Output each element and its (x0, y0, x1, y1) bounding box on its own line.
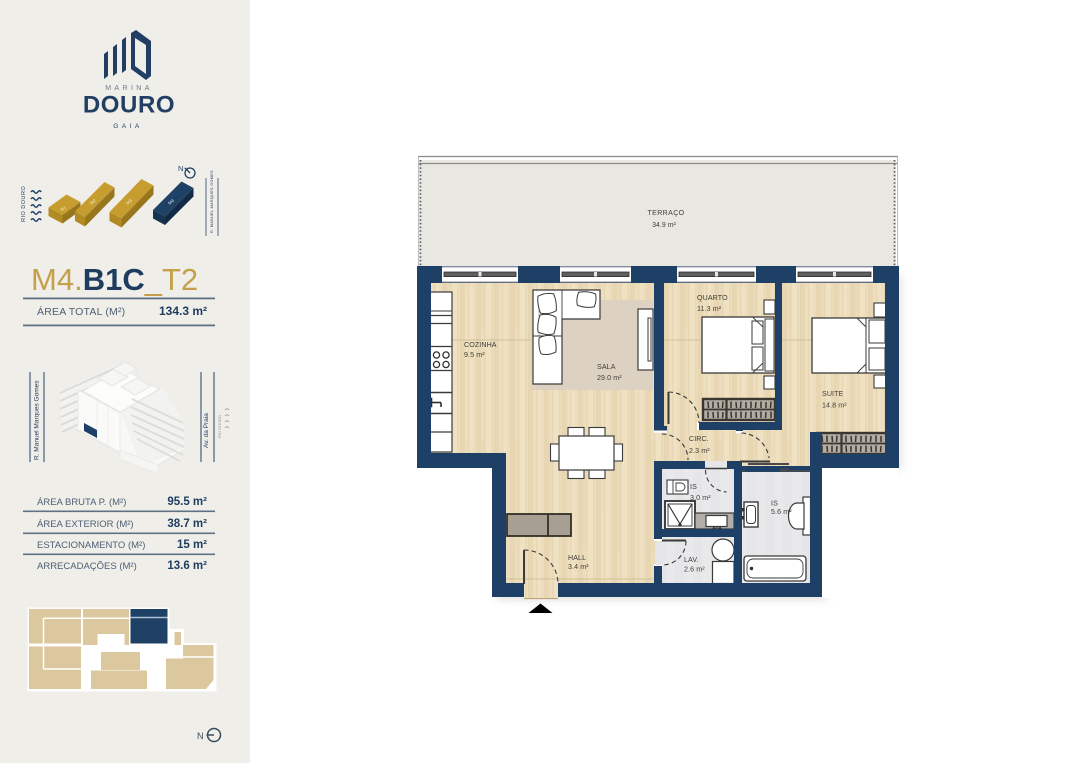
svg-text:3.0 m²: 3.0 m² (690, 494, 711, 502)
svg-text:RIO DOURO: RIO DOURO (21, 186, 27, 223)
svg-text:Av. da Praia: Av. da Praia (203, 413, 210, 448)
svg-text:ÁREA BRUTA P. (M²): ÁREA BRUTA P. (M²) (37, 497, 126, 508)
svg-text:M4.B1C_T2: M4.B1C_T2 (31, 262, 198, 297)
svg-text:2.3 m²: 2.3 m² (689, 447, 710, 455)
svg-text:ÁREA TOTAL (M²): ÁREA TOTAL (M²) (37, 305, 125, 318)
svg-text:N: N (178, 164, 183, 173)
svg-text:SUITE: SUITE (822, 390, 844, 398)
svg-text:DOURO: DOURO (83, 92, 175, 119)
svg-text:IS: IS (771, 500, 778, 508)
svg-text:COZINHA: COZINHA (464, 341, 497, 349)
svg-text:14.8 m²: 14.8 m² (822, 402, 847, 410)
svg-text:15 m²: 15 m² (177, 539, 207, 551)
svg-text:95.5 m²: 95.5 m² (167, 496, 207, 508)
svg-text:CIRC.: CIRC. (689, 435, 709, 443)
svg-text:34.9 m²: 34.9 m² (652, 222, 676, 229)
svg-text:TERRAÇO: TERRAÇO (647, 210, 684, 217)
svg-text:ÁREA EXTERIOR (M²): ÁREA EXTERIOR (M²) (37, 519, 134, 530)
svg-text:SALA: SALA (597, 363, 616, 371)
svg-text:ESTACIONAMENTO (M²): ESTACIONAMENTO (M²) (37, 540, 145, 551)
svg-text:LAV.: LAV. (684, 556, 699, 564)
svg-text:R. Manuel Marques Gomes: R. Manuel Marques Gomes (34, 380, 41, 460)
svg-text:IS: IS (690, 483, 697, 491)
svg-text:29.0 m²: 29.0 m² (597, 374, 622, 382)
svg-text:HALL: HALL (568, 554, 586, 562)
svg-text:3.4 m²: 3.4 m² (568, 563, 589, 571)
svg-text:2.6 m²: 2.6 m² (684, 566, 705, 574)
svg-text:N: N (197, 731, 204, 741)
svg-text:9.5 m²: 9.5 m² (464, 351, 485, 359)
svg-text:13.6 m²: 13.6 m² (167, 560, 207, 572)
svg-text:38.7 m²: 38.7 m² (167, 518, 207, 530)
svg-text:RIO DOURO: RIO DOURO (217, 415, 222, 438)
svg-text:11.3 m²: 11.3 m² (697, 305, 722, 313)
svg-text:5.6 m²: 5.6 m² (771, 508, 792, 516)
svg-text:R. MANUEL MARQUES GOMES: R. MANUEL MARQUES GOMES (210, 170, 214, 233)
svg-text:GAIA: GAIA (113, 123, 143, 130)
svg-text:134.3 m²: 134.3 m² (159, 304, 207, 318)
svg-text:ARRECADAÇÕES (M²): ARRECADAÇÕES (M²) (37, 561, 137, 572)
svg-text:QUARTO: QUARTO (697, 294, 728, 302)
